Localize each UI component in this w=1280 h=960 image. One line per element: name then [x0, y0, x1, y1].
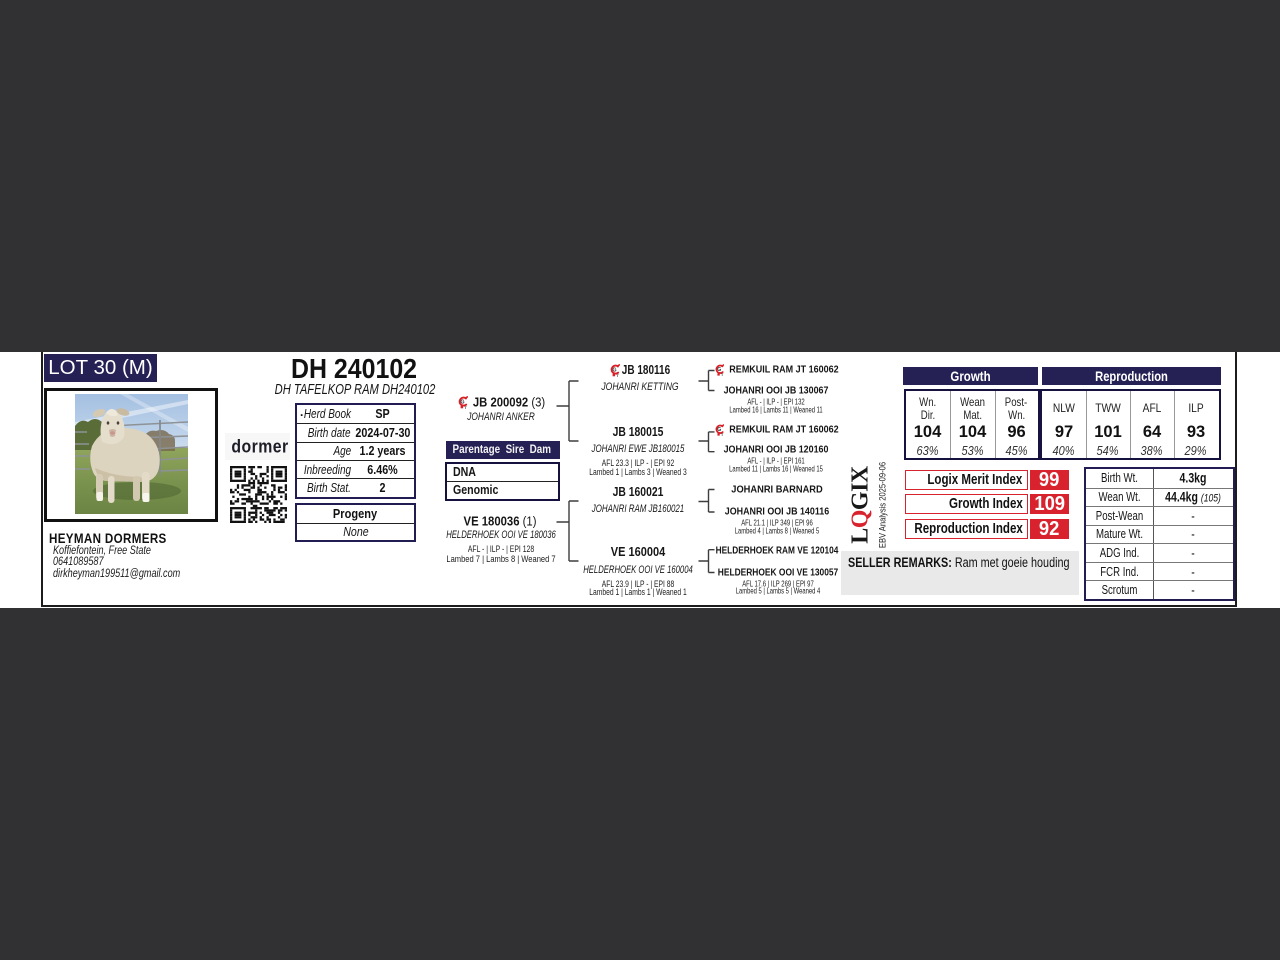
- svg-text:T: T: [721, 433, 724, 436]
- svg-text:T: T: [464, 405, 467, 409]
- svg-text:T: T: [616, 373, 619, 377]
- svg-text:T: T: [721, 373, 724, 376]
